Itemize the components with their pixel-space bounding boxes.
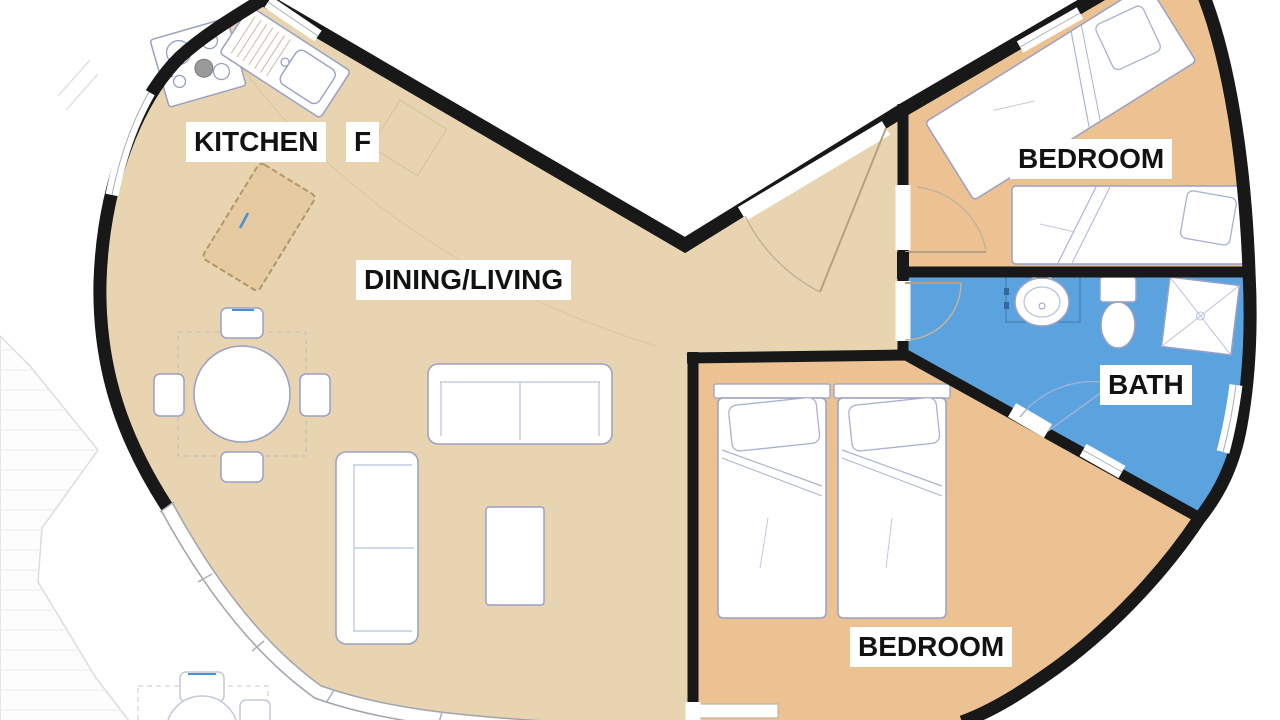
outdoor-table: [166, 696, 238, 720]
shower: [1161, 277, 1239, 355]
dining-chair-bottom: [221, 452, 263, 482]
pillow: [1180, 190, 1238, 246]
dining-living-label: DINING/LIVING: [356, 260, 571, 300]
kitchen-label: KITCHEN: [186, 122, 326, 162]
bed-top-2: [1012, 186, 1245, 264]
sofa-horizontal: [428, 364, 612, 444]
floor-plan-canvas: [0, 0, 1280, 720]
sofa-vertical: [336, 452, 418, 644]
bedroom-top-label: BEDROOM: [1010, 139, 1172, 179]
dining-chair-left: [154, 374, 184, 416]
bed-bottom-right: [834, 384, 950, 618]
toilet-tank: [1100, 277, 1136, 302]
dining-chair-right: [300, 374, 330, 416]
toilet-bowl: [1101, 302, 1135, 348]
dresser: [700, 704, 778, 718]
bedroom-bottom-label: BEDROOM: [850, 627, 1012, 667]
wall-fitting: [1004, 302, 1009, 309]
toilet: [1100, 277, 1136, 348]
deck-edge-top-left: [58, 60, 98, 110]
outdoor-dining-set: [138, 672, 270, 720]
pillow: [848, 397, 940, 452]
headboard: [834, 384, 950, 398]
dining-chair-top: [221, 308, 263, 338]
dining-table: [194, 346, 290, 442]
headboard: [714, 384, 830, 398]
bath-label: BATH: [1100, 365, 1192, 405]
bed-bottom-left: [714, 384, 830, 618]
pillow: [728, 397, 820, 452]
coffee-table: [486, 507, 544, 605]
wall-fitting: [1004, 288, 1009, 295]
outdoor-chair-2: [240, 700, 270, 720]
basin: [1015, 278, 1069, 326]
wall-hub-patch: [897, 252, 909, 279]
fridge-label: F: [346, 122, 379, 162]
floor-plan-page: KITCHEN F DINING/LIVING BEDROOM BATH BED…: [0, 0, 1280, 720]
